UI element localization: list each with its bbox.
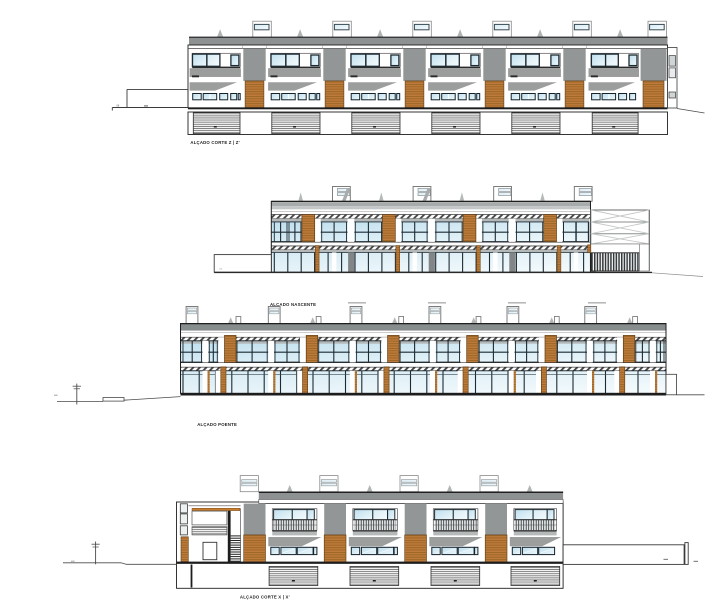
svg-text:MN: MN	[54, 395, 58, 397]
svg-text:MN: MN	[71, 561, 75, 563]
svg-text:ALÇADO CORTE Z | Z': ALÇADO CORTE Z | Z'	[190, 140, 239, 145]
svg-text:ALÇADO CORTE X | X': ALÇADO CORTE X | X'	[240, 594, 290, 599]
svg-text:ALÇADO POENTE: ALÇADO POENTE	[197, 422, 237, 427]
svg-text:ALÇADO NASCENTE: ALÇADO NASCENTE	[270, 302, 316, 307]
